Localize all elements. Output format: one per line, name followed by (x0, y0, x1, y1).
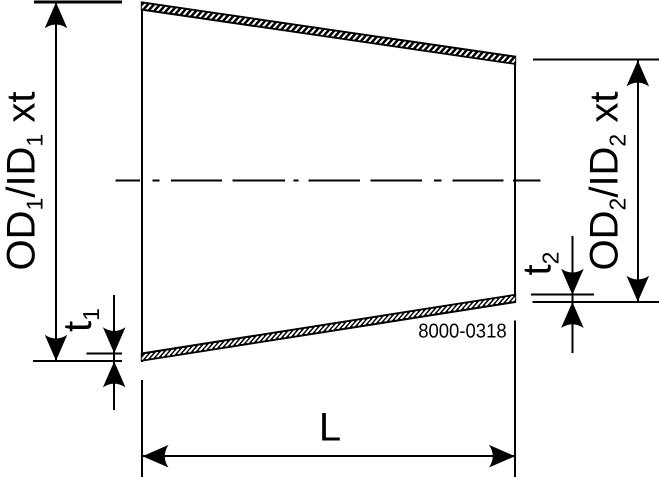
svg-text:L: L (319, 406, 341, 450)
svg-text:8000-0318: 8000-0318 (418, 320, 507, 342)
svg-text:OD2/ID2 xt: OD2/ID2 xt (583, 92, 631, 271)
svg-text:OD1/ID1 xt: OD1/ID1 xt (0, 92, 47, 271)
